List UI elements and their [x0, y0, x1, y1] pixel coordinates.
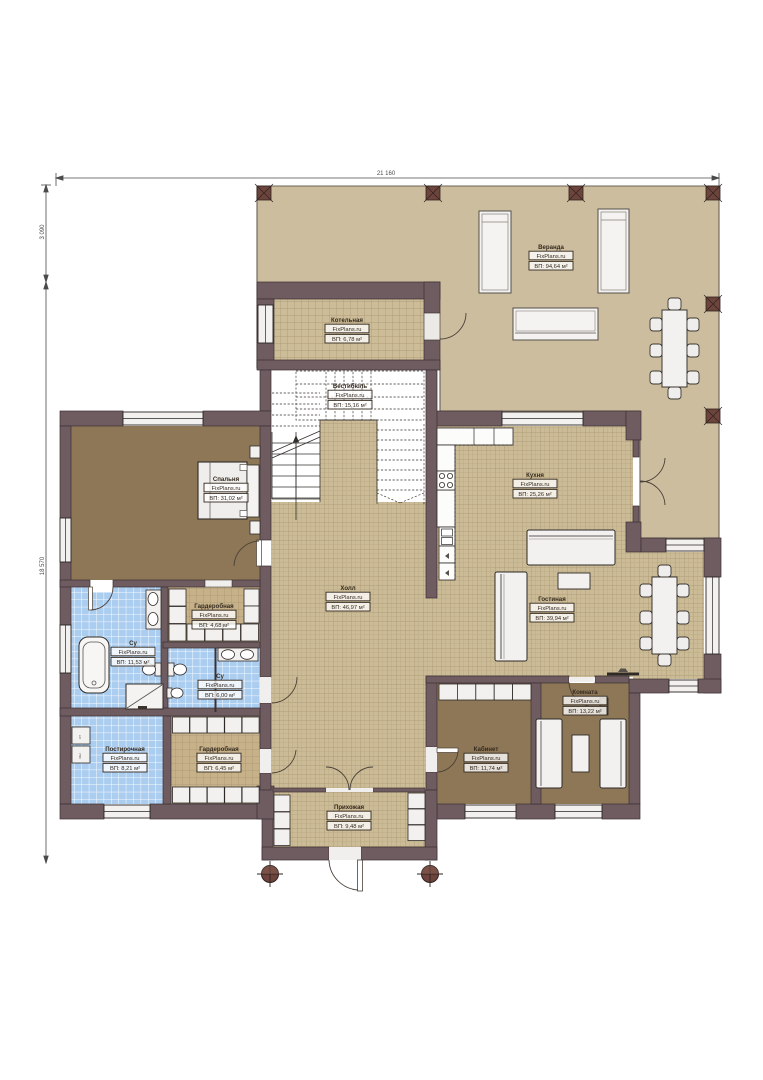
svg-text:Гостиная: Гостиная	[538, 596, 566, 603]
svg-text:Гардеробная: Гардеробная	[194, 603, 234, 610]
svg-text:ВП: 39,94 м²: ВП: 39,94 м²	[535, 616, 568, 622]
svg-text:FixPlans.ru: FixPlans.ru	[206, 683, 235, 689]
svg-text:FixPlans.ru: FixPlans.ru	[119, 650, 148, 656]
svg-text:Комната: Комната	[572, 689, 598, 696]
svg-text:ВП: 13,22 м²: ВП: 13,22 м²	[568, 709, 601, 715]
svg-text:FixPlans.ru: FixPlans.ru	[200, 613, 229, 619]
svg-text:Спальня: Спальня	[213, 476, 240, 483]
svg-text:FixPlans.ru: FixPlans.ru	[472, 756, 501, 762]
svg-text:ВП: 6,78 м²: ВП: 6,78 м²	[332, 337, 362, 343]
svg-text:ВП: 11,53 м²: ВП: 11,53 м²	[117, 660, 150, 666]
svg-text:Вестибюль: Вестибюль	[333, 383, 368, 390]
svg-text:FixPlans.ru: FixPlans.ru	[205, 756, 234, 762]
svg-text:ВП: 31,02 м²: ВП: 31,02 м²	[209, 496, 242, 502]
svg-text:FixPlans.ru: FixPlans.ru	[333, 327, 362, 333]
svg-text:ВП: 8,21 м²: ВП: 8,21 м²	[110, 766, 140, 772]
svg-text:Кабинет: Кабинет	[474, 746, 499, 753]
svg-text:Прихожая: Прихожая	[334, 804, 365, 811]
svg-text:FixPlans.ru: FixPlans.ru	[334, 595, 363, 601]
svg-text:Су: Су	[216, 673, 224, 680]
svg-text:Холл: Холл	[340, 585, 355, 592]
svg-text:ст: ст	[77, 735, 82, 739]
svg-text:21 160: 21 160	[377, 171, 396, 177]
svg-text:FixPlans.ru: FixPlans.ru	[335, 814, 364, 820]
svg-text:Веранда: Веранда	[538, 244, 564, 251]
svg-text:ВП: 11,74 м²: ВП: 11,74 м²	[470, 766, 503, 772]
svg-text:ВП: 6,45 м²: ВП: 6,45 м²	[204, 766, 234, 772]
svg-text:FixPlans.ru: FixPlans.ru	[521, 482, 550, 488]
svg-text:ВП: 46,97 м²: ВП: 46,97 м²	[331, 605, 364, 611]
svg-text:FixPlans.ru: FixPlans.ru	[111, 756, 140, 762]
svg-text:FixPlans.ru: FixPlans.ru	[538, 606, 567, 612]
svg-text:ВП: 4,68 м²: ВП: 4,68 м²	[199, 623, 229, 629]
svg-text:ВП: 15,16 м²: ВП: 15,16 м²	[333, 403, 366, 409]
svg-text:FixPlans.ru: FixPlans.ru	[336, 393, 365, 399]
svg-text:Котельная: Котельная	[331, 317, 363, 324]
svg-text:ВП: 25,26 м²: ВП: 25,26 м²	[518, 492, 551, 498]
svg-text:FixPlans.ru: FixPlans.ru	[571, 699, 600, 705]
svg-text:18 570: 18 570	[40, 556, 46, 575]
svg-text:FixPlans.ru: FixPlans.ru	[212, 486, 241, 492]
svg-text:ВП: 6,00 м²: ВП: 6,00 м²	[205, 693, 235, 699]
svg-text:ВП: 94,64 м²: ВП: 94,64 м²	[534, 264, 567, 270]
svg-text:Гардеробная: Гардеробная	[199, 746, 239, 753]
svg-text:ВП: 9,48 м²: ВП: 9,48 м²	[334, 824, 364, 830]
svg-text:Кухня: Кухня	[526, 472, 544, 479]
svg-text:FixPlans.ru: FixPlans.ru	[537, 254, 566, 260]
svg-text:Су: Су	[129, 640, 137, 647]
svg-text:сш: сш	[77, 753, 82, 758]
svg-text:Постирочная: Постирочная	[105, 746, 145, 753]
svg-text:3 090: 3 090	[40, 224, 46, 240]
